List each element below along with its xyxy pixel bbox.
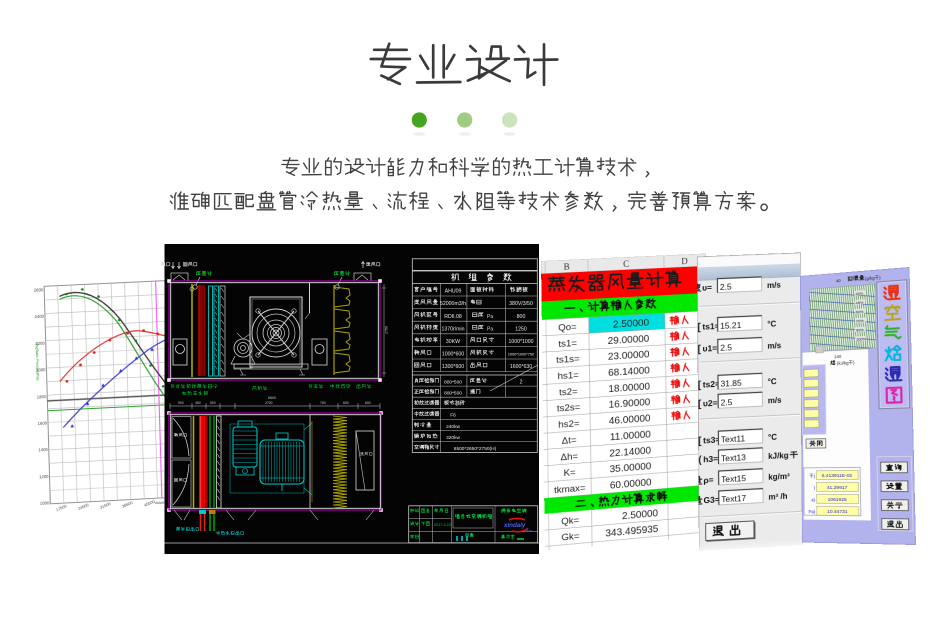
svg-text:ts2=: ts2=: [703, 379, 720, 390]
svg-text:a+b: a+b: [526, 529, 532, 533]
svg-text:D: D: [681, 258, 688, 268]
svg-text:2600: 2600: [34, 287, 44, 292]
svg-text:380V/3/50: 380V/3/50: [509, 301, 533, 307]
svg-text:ts1s=: ts1s=: [556, 354, 580, 366]
svg-text:m/s: m/s: [767, 340, 781, 350]
svg-text:Pa): Pa): [809, 509, 816, 514]
svg-text:Text15: Text15: [721, 473, 746, 484]
svg-text:°C: °C: [768, 432, 777, 442]
svg-text:m³ /h: m³ /h: [768, 491, 787, 502]
svg-text:ρ=: ρ=: [703, 475, 713, 485]
svg-text:800: 800: [517, 314, 526, 320]
svg-text:Pa(Static Pressure(Pa)): Pa(Static Pressure(Pa)): [35, 343, 40, 380]
svg-text:(kJ/kg干): (kJ/kg干): [837, 360, 855, 366]
svg-text:2.5: 2.5: [720, 282, 732, 292]
svg-text:°C: °C: [768, 376, 777, 386]
svg-text:m/s: m/s: [767, 280, 781, 290]
svg-text:2: 2: [520, 379, 523, 385]
svg-text:ts3=: ts3=: [703, 435, 720, 446]
svg-text:Text11: Text11: [721, 433, 745, 444]
svg-text:140: 140: [834, 354, 841, 359]
svg-text:B: B: [564, 263, 570, 273]
svg-text:2700: 2700: [265, 401, 273, 405]
svg-text:800*500: 800*500: [444, 391, 462, 397]
svg-text:1000*600: 1000*600: [442, 352, 464, 358]
svg-text:ts2=: ts2=: [559, 387, 578, 399]
svg-text:1600: 1600: [38, 421, 48, 426]
svg-text:RDII.08: RDII.08: [444, 314, 462, 320]
svg-text:500: 500: [210, 401, 216, 405]
svg-text:Gk=: Gk=: [561, 531, 579, 543]
svg-text:240kw: 240kw: [446, 424, 460, 430]
svg-text:60%: 60%: [856, 309, 864, 314]
svg-text:F6: F6: [450, 413, 456, 419]
svg-text:40%: 40%: [855, 291, 863, 296]
svg-text:AHU09: AHU09: [445, 289, 462, 295]
svg-text:Δh=: Δh=: [561, 451, 579, 463]
svg-text:10.44731: 10.44731: [827, 508, 848, 515]
svg-text:750: 750: [320, 401, 326, 405]
svg-text:45%: 45%: [856, 300, 864, 305]
svg-text:2017.4.22: 2017.4.22: [434, 523, 451, 527]
svg-text:100%: 100%: [856, 336, 866, 341]
svg-text:υ1=: υ1=: [703, 343, 718, 353]
svg-text:1061925: 1061925: [828, 496, 848, 502]
svg-text:h3=: h3=: [703, 454, 718, 465]
svg-text:m/s: m/s: [768, 395, 782, 405]
svg-text:1000*1000: 1000*1000: [508, 339, 533, 345]
svg-text:Qo=: Qo=: [558, 322, 577, 333]
svg-text:1800: 1800: [37, 394, 47, 399]
svg-text:600: 600: [343, 401, 349, 405]
svg-text:1250: 1250: [515, 326, 527, 332]
svg-text:干): 干): [809, 474, 815, 479]
svg-text:31.85: 31.85: [720, 378, 741, 389]
svg-text:6.413911E-02: 6.413911E-02: [822, 472, 852, 478]
svg-text:xindaly: xindaly: [503, 522, 526, 529]
svg-text:G3=: G3=: [703, 495, 719, 506]
svg-text:1200: 1200: [39, 474, 49, 479]
svg-text:52000m3/h: 52000m3/h: [440, 301, 466, 307]
svg-text:31500: 31500: [99, 501, 112, 510]
svg-text:90%: 90%: [856, 327, 864, 332]
svg-text:υ2=: υ2=: [703, 398, 718, 409]
svg-text:kJ/kg: kJ/kg: [768, 450, 789, 461]
svg-text:2.5: 2.5: [720, 342, 732, 352]
svg-text:17500: 17500: [55, 503, 68, 512]
svg-text:30KW: 30KW: [446, 339, 460, 345]
svg-text:2.5: 2.5: [721, 397, 733, 407]
svg-text:1600*630: 1600*630: [510, 364, 532, 370]
svg-text:600: 600: [365, 401, 371, 405]
svg-text:C: C: [623, 260, 629, 270]
svg-text:6500*2650*2750(H): 6500*2650*2750(H): [454, 446, 497, 452]
svg-text:ts1=: ts1=: [558, 338, 577, 349]
svg-text:Text13: Text13: [721, 452, 746, 463]
svg-text:a): a): [811, 498, 815, 503]
svg-text:1300*600: 1300*600: [442, 364, 464, 370]
svg-text:1370r/min: 1370r/min: [441, 326, 464, 332]
svg-text:900: 900: [178, 401, 184, 405]
svg-text:2750: 2750: [385, 326, 389, 334]
svg-text:70%: 70%: [856, 318, 864, 323]
svg-text:K=: K=: [563, 468, 575, 479]
svg-text:): ): [814, 486, 816, 491]
svg-text:800*500: 800*500: [444, 379, 462, 385]
svg-text:G4: G4: [455, 402, 462, 407]
svg-text:15.21: 15.21: [720, 320, 741, 331]
svg-text:Text17: Text17: [721, 493, 746, 504]
svg-text:kg/m³: kg/m³: [768, 471, 790, 482]
svg-text:2400: 2400: [35, 314, 45, 319]
svg-text:1000*1000*750: 1000*1000*750: [508, 353, 534, 357]
svg-text:°C: °C: [767, 319, 776, 329]
svg-text:ts2s=: ts2s=: [557, 403, 581, 415]
svg-text:Pa: Pa: [487, 314, 493, 320]
svg-text:320kw: 320kw: [446, 435, 460, 441]
svg-text:Pa: Pa: [487, 326, 493, 332]
svg-text:41.29917: 41.29917: [827, 484, 848, 490]
svg-text:6500: 6500: [268, 396, 276, 400]
svg-text:ts1=: ts1=: [702, 321, 719, 332]
svg-text:450: 450: [195, 401, 201, 405]
svg-text:hs1=: hs1=: [557, 370, 579, 382]
svg-text:1000: 1000: [40, 500, 50, 505]
svg-text:24500: 24500: [77, 502, 90, 511]
svg-text:hs2=: hs2=: [558, 419, 580, 431]
svg-text:υ=: υ=: [702, 282, 712, 292]
svg-text:1400: 1400: [38, 447, 48, 452]
svg-text:Δt=: Δt=: [562, 435, 577, 447]
svg-text:38500: 38500: [121, 500, 134, 509]
svg-text:2.50000: 2.50000: [613, 318, 649, 330]
svg-text:40: 40: [836, 278, 841, 283]
svg-text:Qk=: Qk=: [561, 515, 579, 527]
